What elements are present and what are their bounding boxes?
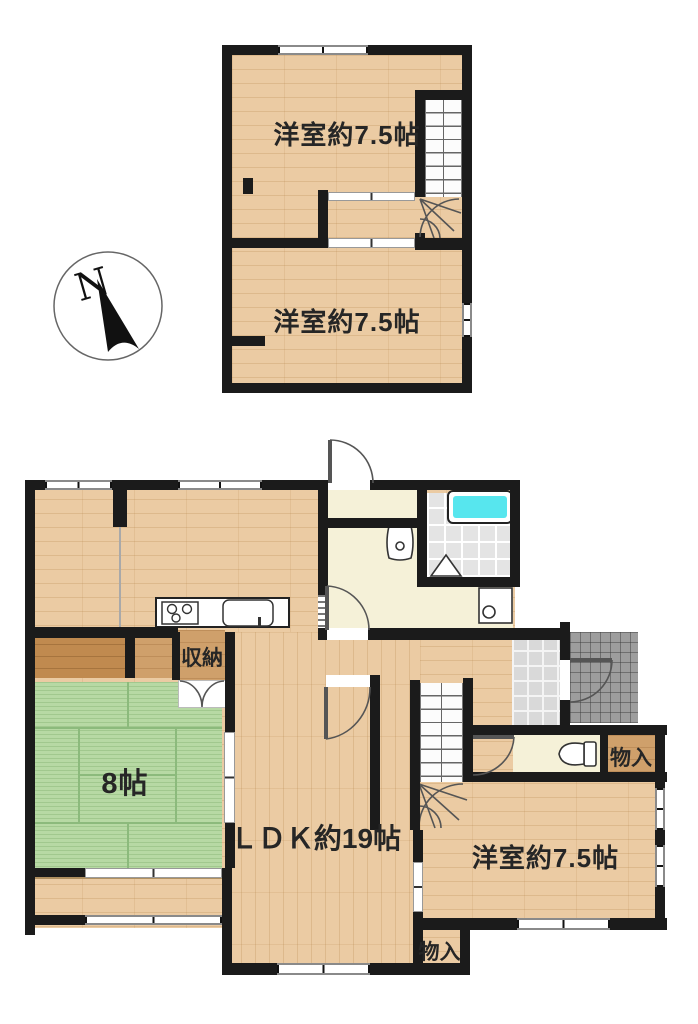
floor1-stair-winder xyxy=(417,782,469,830)
closet-east-label: 物入 xyxy=(605,742,657,772)
wall xyxy=(417,483,427,587)
wall xyxy=(368,628,567,640)
wall xyxy=(328,518,417,528)
floor1-stair-treads xyxy=(420,683,463,782)
floor2-wall-divider-west xyxy=(232,238,318,248)
wall xyxy=(410,680,420,830)
wall xyxy=(25,480,35,935)
compass-icon: N xyxy=(50,248,166,364)
washroom-door-swing xyxy=(325,584,371,632)
floor2-east-window xyxy=(462,303,472,337)
bathtub-water xyxy=(453,496,507,518)
stove-icon xyxy=(161,601,199,625)
tatami-mat-line xyxy=(127,822,129,870)
front-door-swing xyxy=(566,654,614,704)
wall xyxy=(25,915,85,925)
back-door-swing xyxy=(326,436,376,485)
wall xyxy=(25,627,178,638)
tatami-room-label: 8帖 xyxy=(60,760,190,802)
floor2-room-north-label: 洋室約7.5帖 xyxy=(232,115,462,152)
hall-ldk-door-swing xyxy=(322,685,374,743)
floor2-wall-stub-north xyxy=(243,178,253,194)
small-closet xyxy=(135,632,172,678)
toilet-door-swing xyxy=(466,731,516,777)
wall xyxy=(318,480,328,595)
utility-room xyxy=(328,490,417,520)
tatami-sliding-door xyxy=(224,732,235,823)
bath-door-marker xyxy=(430,555,462,577)
entrance-genkan-tile xyxy=(512,637,560,727)
sink-icon xyxy=(222,599,274,627)
storage-folding-door xyxy=(178,680,226,708)
closet-south-label: 物入 xyxy=(412,936,467,966)
room-divider-line xyxy=(119,527,121,628)
wall xyxy=(510,483,520,587)
floor2-stair-winder xyxy=(418,197,462,240)
east-room-window-2 xyxy=(655,845,665,887)
wall xyxy=(125,632,135,678)
floor2-sliding-door-south xyxy=(328,238,415,248)
kitchen-storage-label: 収納 xyxy=(176,642,228,672)
floor1-floor-ldk xyxy=(227,632,420,968)
wash-basin-icon xyxy=(385,524,415,562)
floor-plan: 洋室約7.5帖 洋室約7.5帖 N xyxy=(0,0,698,1024)
washer-pan xyxy=(478,587,513,624)
wall xyxy=(417,577,520,587)
wall xyxy=(113,483,127,527)
wall xyxy=(610,918,667,930)
north-window-center xyxy=(178,480,262,490)
wall xyxy=(222,868,232,975)
east-room-label: 洋室約7.5帖 xyxy=(448,838,643,875)
floor2-north-window xyxy=(278,45,368,55)
floor2-wall-divider-east xyxy=(415,238,462,250)
floor2-sliding-door-north xyxy=(328,192,415,201)
floor2-wall-center xyxy=(318,190,328,248)
toilet-icon xyxy=(556,740,600,768)
engawa-sliding-door xyxy=(85,868,222,878)
ldk-east-room-sliding-door xyxy=(413,862,423,912)
ldk-label: ＬＤＫ約19帖 xyxy=(213,817,418,857)
oshiire-closet xyxy=(35,632,125,678)
engawa-window xyxy=(85,915,222,925)
east-room-south-window xyxy=(517,918,610,930)
east-room-window-1 xyxy=(655,788,665,830)
floor2-room-south-label: 洋室約7.5帖 xyxy=(232,302,462,339)
tatami-mat-line xyxy=(127,682,129,729)
ldk-south-window xyxy=(277,963,370,975)
north-window-west xyxy=(45,480,112,490)
